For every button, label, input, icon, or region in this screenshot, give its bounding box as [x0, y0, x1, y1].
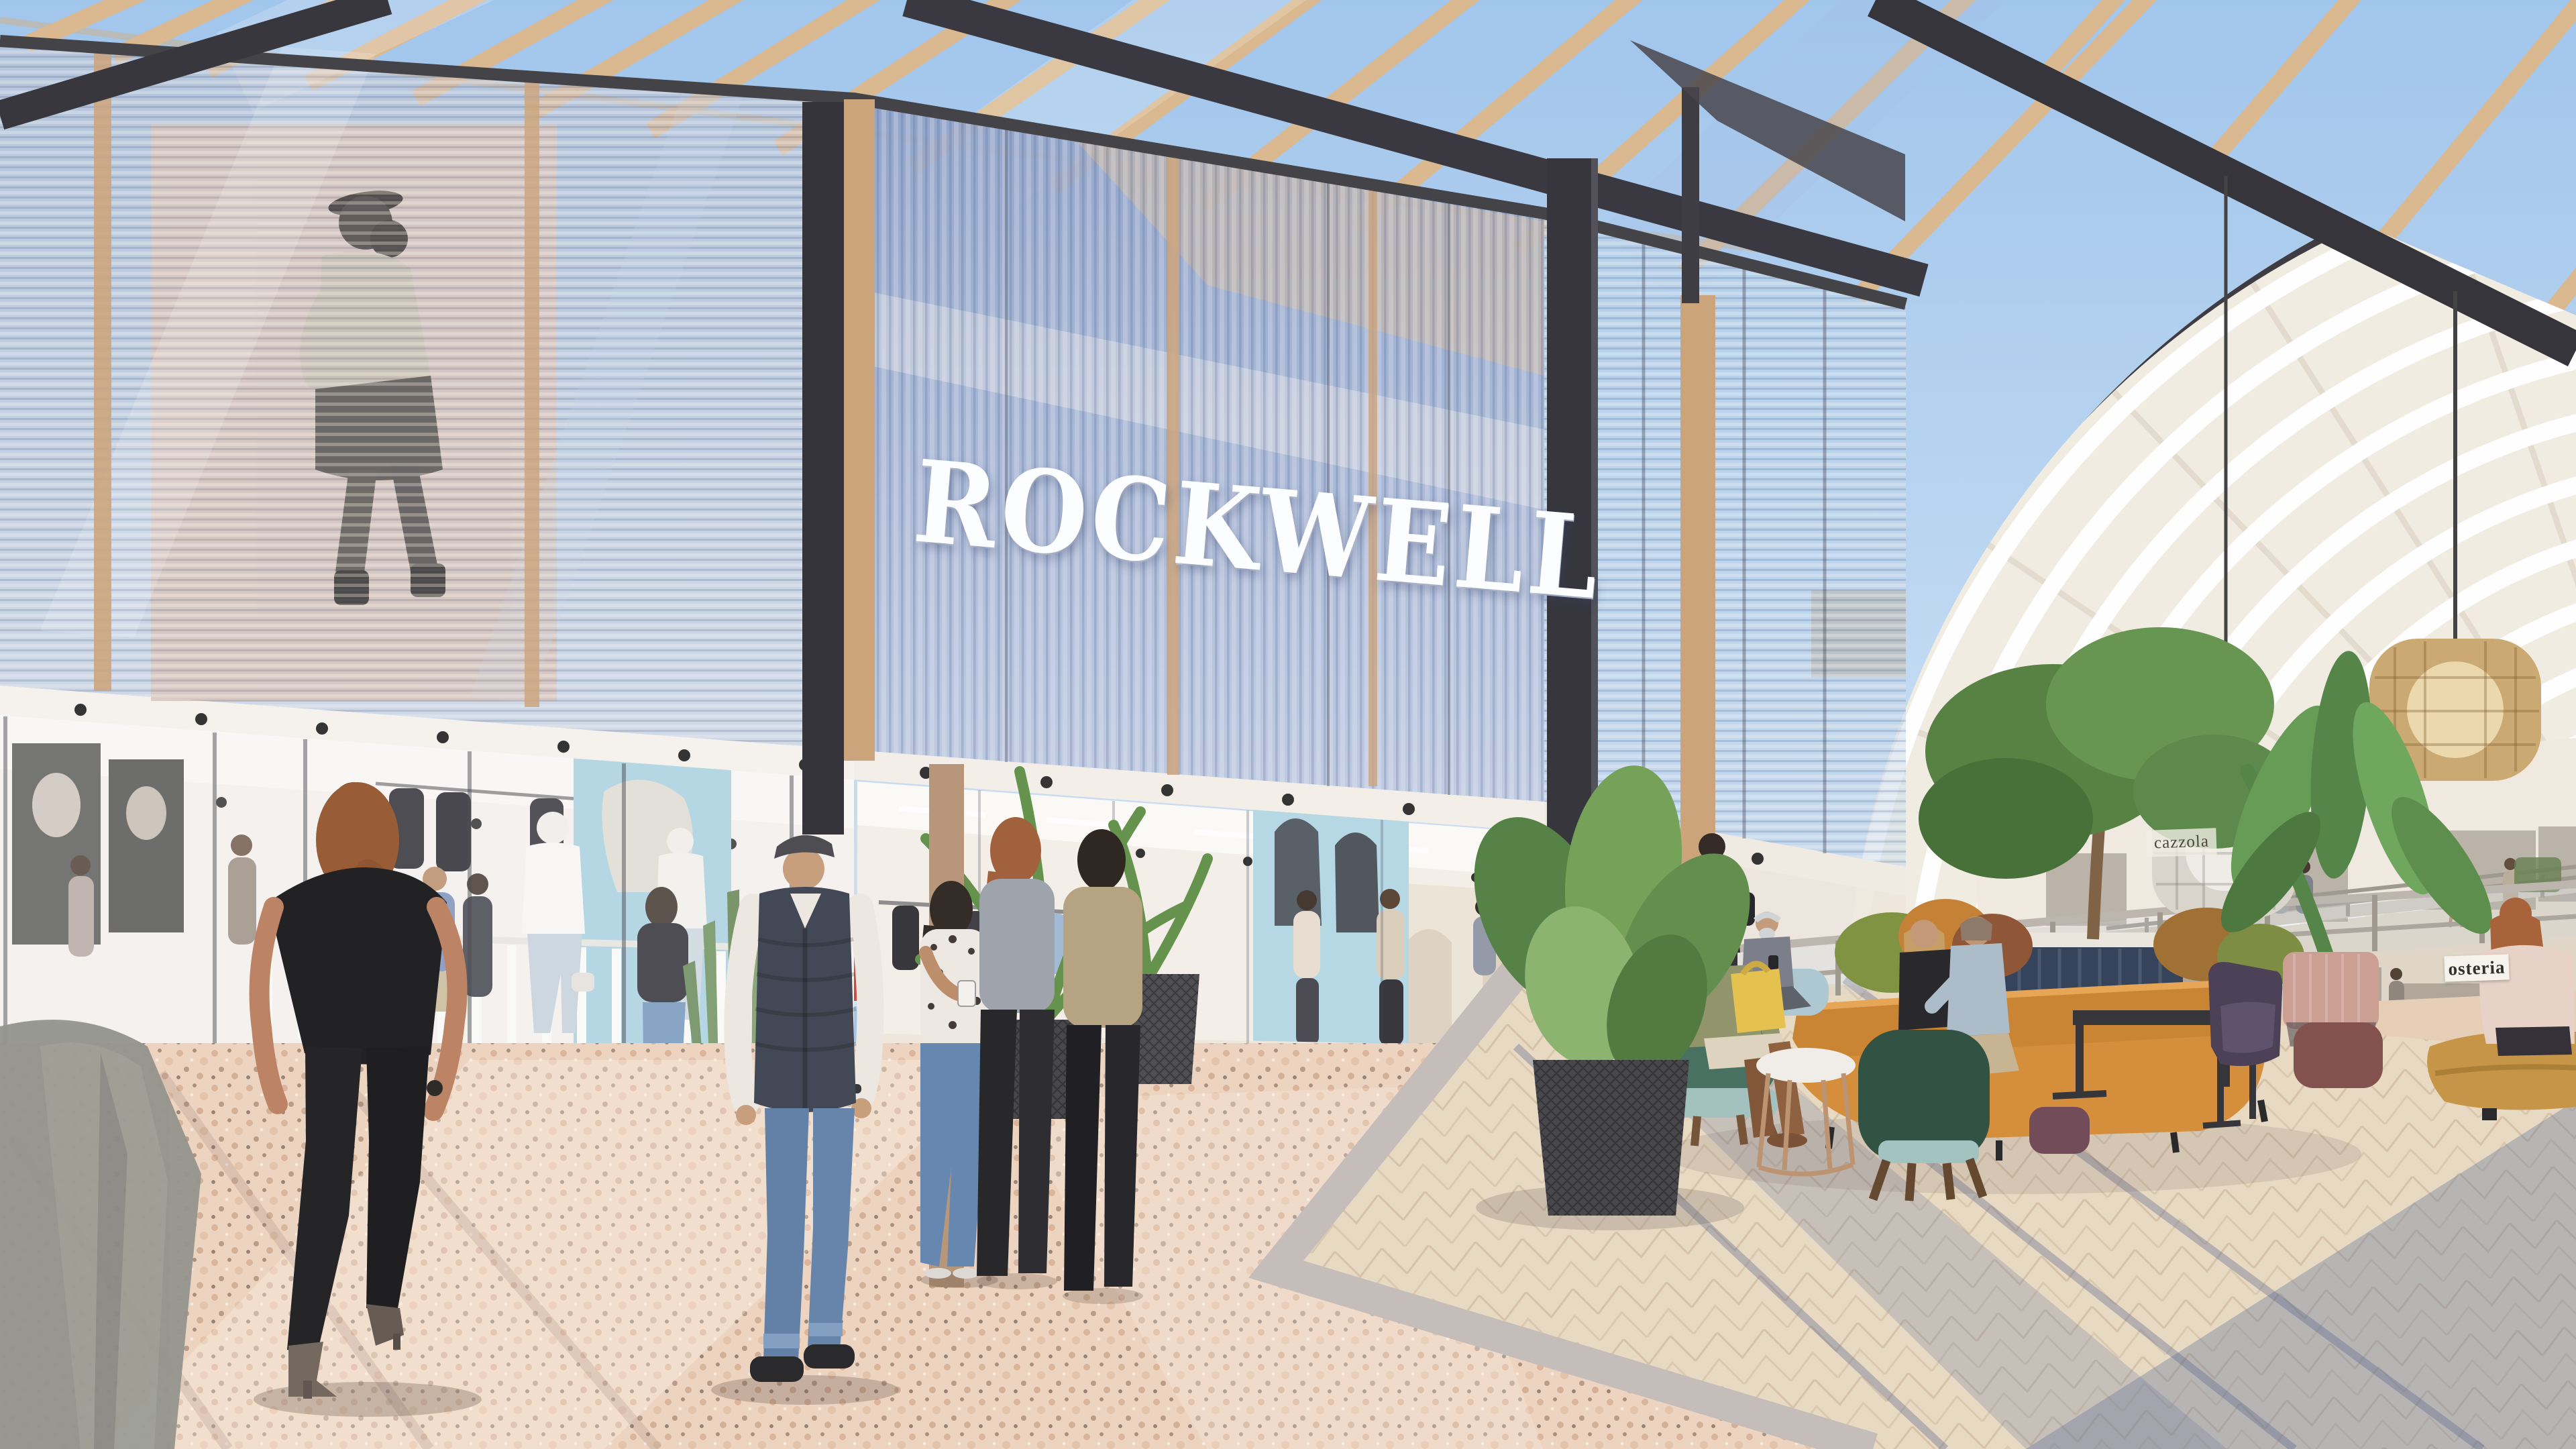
warm-grade — [0, 0, 2576, 1449]
cazzola-storefront-sign: cazzola — [2146, 828, 2216, 857]
mall-atrium-scene: ROCKWELL cazzola osteria — [0, 0, 2576, 1449]
scene-canvas — [0, 0, 2576, 1449]
osteria-restaurant-sign: osteria — [2444, 954, 2509, 981]
